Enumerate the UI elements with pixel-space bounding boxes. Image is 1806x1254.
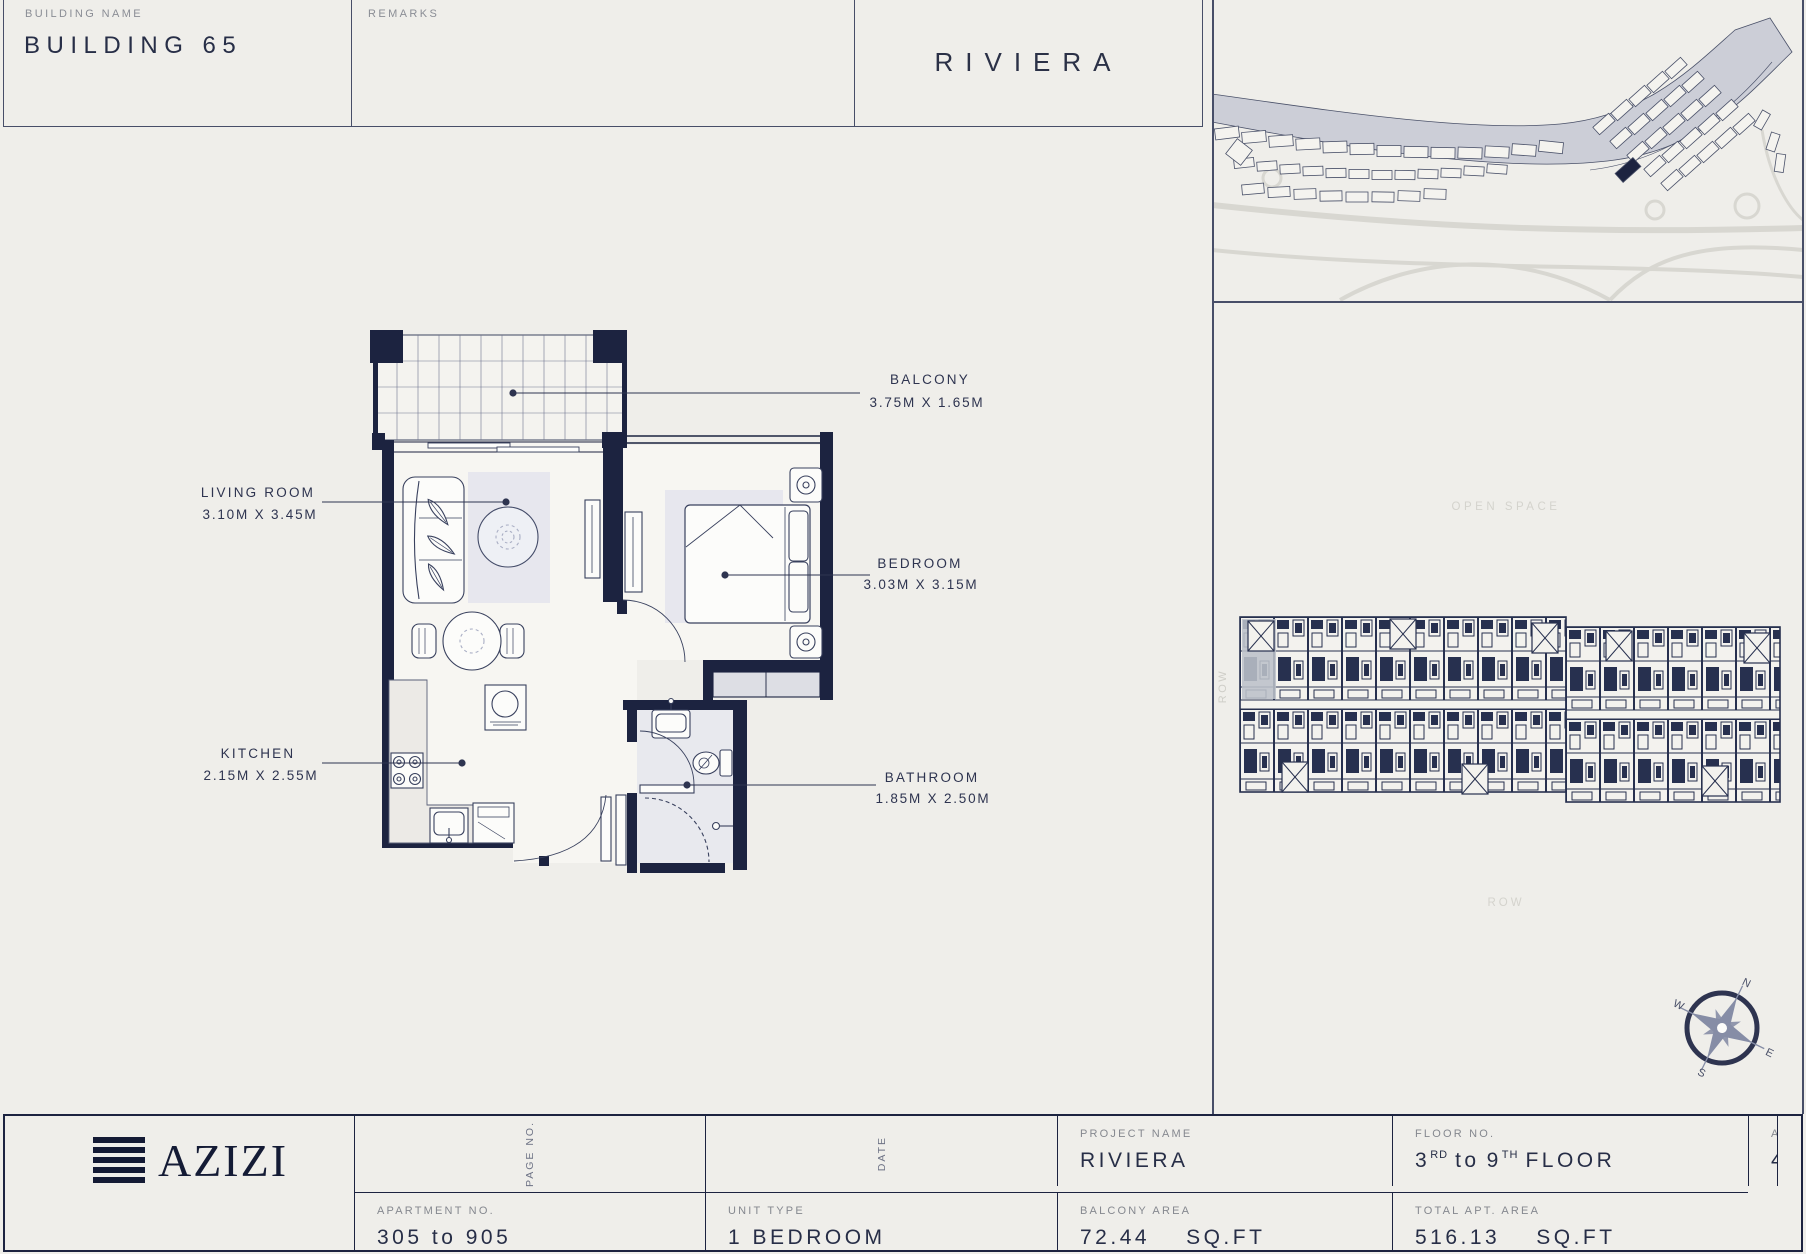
console-bedroom (625, 512, 642, 592)
azizi-logo-text: AZIZI (158, 1134, 288, 1187)
page-no-cell: PAGE NO. (354, 1116, 705, 1192)
floor-no-value: 3RDto9THFLOOR (1415, 1149, 1748, 1173)
logo-cell: AZIZI (5, 1116, 354, 1192)
unit-type-label: UNIT TYPE (728, 1205, 1057, 1217)
balcony-area-value: 72.44SQ.FT (1080, 1226, 1392, 1250)
building-name-value: BUILDING 65 (4, 20, 351, 60)
site-map (1212, 18, 1803, 300)
building-name-label: BUILDING NAME (4, 0, 351, 20)
floor-no-label: FLOOR NO. (1415, 1128, 1748, 1140)
date-label: DATE (876, 1136, 888, 1171)
total-area-cell: TOTAL APT. AREA 516.13SQ.FT (1392, 1192, 1748, 1250)
date-cell: DATE (705, 1116, 1057, 1192)
apartment-floor-plan: BALCONY 3.75M X 1.65M LIVING ROOM 3.10M … (180, 310, 1010, 900)
sofa (403, 477, 464, 603)
row-label: ROW (1487, 897, 1524, 909)
unit-type-value: 1 BEDROOM (728, 1226, 1057, 1250)
bedroom-closet (713, 672, 820, 697)
kitchen-dims: 2.15M X 2.55M (204, 768, 319, 783)
remarks-box: REMARKS (352, 0, 855, 127)
key-plan (1240, 617, 1780, 802)
panel-left-border (1212, 0, 1214, 1114)
title-block-table: AZIZI PROJECT NAME RIVIERA FLOOR NO. 3RD… (3, 1114, 1803, 1252)
azizi-logo-bars-icon (93, 1137, 145, 1183)
apt-area-cell: APT. AREA 443.69SQ.FT (1748, 1116, 1777, 1186)
compass-e: E (1763, 1046, 1775, 1060)
compass-icon: N E S W (1659, 965, 1785, 1091)
azizi-logo: AZIZI (93, 1134, 288, 1187)
apartment-no-label: APARTMENT NO. (377, 1205, 705, 1217)
bedroom-label: BEDROOM (877, 556, 962, 571)
balcony-label: BALCONY (890, 372, 970, 387)
project-title: RIVIERA (855, 0, 1202, 78)
project-name-label: PROJECT NAME (1080, 1128, 1392, 1140)
open-space-label: OPEN SPACE (1452, 501, 1561, 513)
living-room-dims: 3.10M X 3.45M (203, 507, 318, 522)
project-name-cell: PROJECT NAME RIVIERA (1057, 1116, 1392, 1186)
bedroom-dims: 3.03M X 3.15M (864, 577, 979, 592)
living-room-label: LIVING ROOM (201, 485, 315, 500)
bed (685, 505, 810, 623)
nightstand-top (790, 468, 822, 502)
kitchen-sink (430, 808, 468, 843)
bathroom-label: BATHROOM (885, 770, 980, 785)
project-title-box: RIVIERA (855, 0, 1203, 127)
row-side-label: ROW (1217, 669, 1229, 703)
total-area-label: TOTAL APT. AREA (1415, 1205, 1748, 1217)
floor-plan-sheet: BUILDING NAME BUILDING 65 REMARKS RIVIER… (0, 0, 1806, 1254)
compass-w: W (1671, 998, 1686, 1014)
toilet (693, 750, 732, 776)
remarks-label: REMARKS (352, 0, 854, 20)
balcony-dims: 3.75M X 1.65M (870, 395, 985, 410)
apartment-no-cell: APARTMENT NO. 305 to 905 (354, 1192, 705, 1250)
apartment-no-value: 305 to 905 (377, 1226, 705, 1250)
compass-s: S (1695, 1066, 1707, 1080)
counter-appliance (473, 803, 514, 843)
console-living (585, 500, 600, 578)
washer-unit (485, 685, 526, 730)
site-map-divider (1212, 301, 1803, 303)
building-name-box: BUILDING NAME BUILDING 65 (3, 0, 352, 127)
panel-right-border (1802, 0, 1804, 1114)
unit-type-cell: UNIT TYPE 1 BEDROOM (705, 1192, 1057, 1250)
total-area-value: 516.13SQ.FT (1415, 1226, 1748, 1250)
balcony-area-cell: BALCONY AREA 72.44SQ.FT (1057, 1192, 1392, 1250)
stove (391, 753, 423, 788)
balcony-area-label: BALCONY AREA (1080, 1205, 1392, 1217)
empty-cell (1777, 1116, 1801, 1186)
bathroom-dims: 1.85M X 2.50M (876, 791, 991, 806)
kitchen-label: KITCHEN (221, 746, 296, 761)
project-name-value: RIVIERA (1080, 1149, 1392, 1173)
round-rug (478, 507, 538, 567)
nightstand-bottom (790, 626, 822, 658)
site-panel: OPEN SPACE ROW ROW (1212, 0, 1806, 1114)
page-no-label: PAGE NO. (524, 1121, 536, 1187)
floor-no-cell: FLOOR NO. 3RDto9THFLOOR (1392, 1116, 1748, 1186)
